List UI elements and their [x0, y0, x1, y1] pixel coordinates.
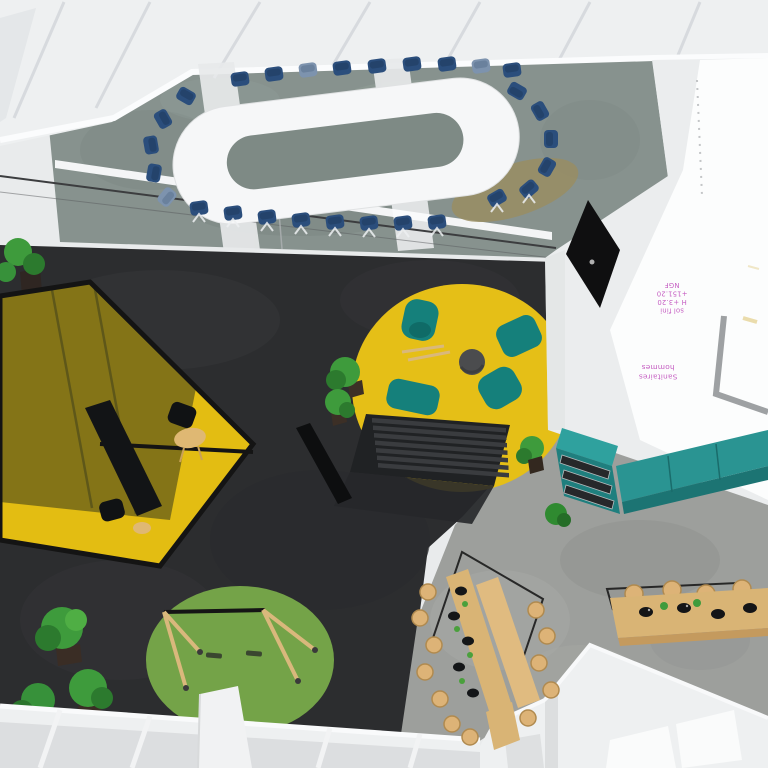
stool: [420, 584, 436, 600]
table-plant: [660, 602, 668, 610]
chair: [502, 62, 522, 78]
bowl: [677, 603, 691, 613]
plan-annotation-room-label: Sanitaires hommes: [639, 363, 678, 381]
stool: [520, 710, 536, 726]
chair: [298, 62, 318, 78]
stool: [412, 610, 428, 626]
stool: [432, 691, 448, 707]
chair: [230, 71, 250, 87]
svg-text:H +3.20: H +3.20: [657, 298, 687, 306]
table-plant: [462, 601, 468, 607]
table-plant: [467, 652, 473, 658]
svg-text:hommes: hommes: [641, 363, 674, 372]
booth-stool: [133, 522, 151, 534]
chair: [544, 130, 558, 148]
svg-text:sol fini: sol fini: [660, 307, 684, 315]
stool: [426, 637, 442, 653]
bowl: [467, 689, 479, 698]
chair: [332, 60, 352, 76]
bowl: [639, 607, 653, 617]
stool: [531, 655, 547, 671]
table-plant: [454, 626, 460, 632]
stool: [539, 628, 555, 644]
chair: [471, 58, 491, 74]
svg-text:Sanitaires: Sanitaires: [639, 373, 678, 382]
chair: [402, 56, 422, 72]
bowl: [462, 637, 474, 646]
screen-glint: [590, 260, 595, 265]
chair: [264, 66, 284, 82]
stool: [528, 602, 544, 618]
table-plant: [459, 678, 465, 684]
office-render: sol fini H +3.20 +151.20 NGF Sanitaires …: [0, 0, 768, 768]
svg-text:+151.20: +151.20: [657, 290, 688, 298]
stool: [462, 729, 478, 745]
svg-text:NGF: NGF: [665, 281, 680, 289]
bowl: [448, 612, 460, 621]
bowl: [455, 587, 467, 596]
stool: [543, 682, 559, 698]
chair: [367, 58, 387, 74]
stool: [444, 716, 460, 732]
stool: [417, 664, 433, 680]
bowl: [743, 603, 757, 613]
bowl: [711, 609, 725, 619]
chair: [437, 56, 457, 72]
table-plant: [693, 599, 701, 607]
bowl: [453, 663, 465, 672]
